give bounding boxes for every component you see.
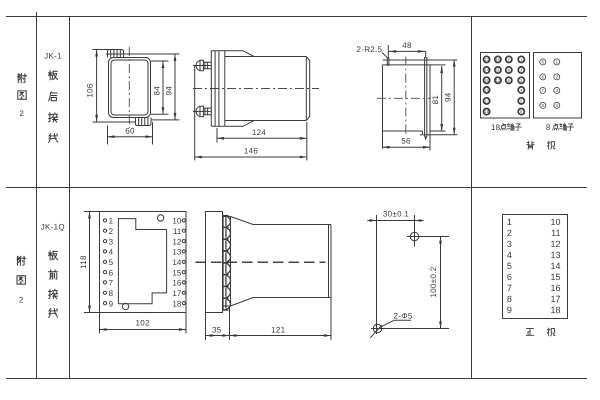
svg-text:48: 48 (402, 41, 412, 50)
svg-text:15: 15 (484, 78, 489, 83)
svg-text:18: 18 (550, 305, 560, 315)
svg-text:14: 14 (484, 68, 489, 73)
svg-text:146: 146 (244, 147, 258, 156)
svg-text:1: 1 (507, 217, 512, 227)
svg-text:121: 121 (271, 325, 285, 334)
svg-text:15: 15 (550, 272, 560, 282)
svg-text:2: 2 (19, 296, 24, 305)
svg-text:102: 102 (135, 319, 149, 328)
svg-text:8: 8 (507, 294, 512, 304)
svg-text:JK-1: JK-1 (44, 52, 62, 61)
svg-text:13: 13 (550, 250, 560, 260)
svg-text:2-R2.5: 2-R2.5 (357, 45, 383, 54)
svg-text:94: 94 (444, 92, 453, 102)
svg-text:106: 106 (86, 83, 95, 97)
svg-text:60: 60 (125, 127, 135, 136)
svg-text:17: 17 (550, 294, 560, 304)
svg-text:14: 14 (172, 258, 181, 267)
svg-text:7: 7 (109, 279, 114, 288)
svg-text:16: 16 (550, 283, 560, 293)
svg-text:13: 13 (484, 57, 489, 62)
svg-text:2-Φ5: 2-Φ5 (394, 312, 413, 321)
svg-text:17: 17 (172, 289, 181, 298)
svg-text:16: 16 (172, 279, 181, 288)
svg-text:JK-1Q: JK-1Q (41, 223, 65, 232)
svg-text:8: 8 (109, 289, 114, 298)
svg-text:9: 9 (507, 305, 512, 315)
svg-text:30±0.1: 30±0.1 (383, 210, 409, 219)
svg-text:12: 12 (550, 239, 560, 249)
svg-text:18: 18 (484, 109, 489, 114)
svg-text:1: 1 (109, 217, 114, 226)
svg-text:18: 18 (491, 123, 501, 132)
svg-text:9: 9 (109, 299, 114, 308)
svg-text:14: 14 (550, 261, 560, 271)
svg-text:56: 56 (401, 137, 411, 146)
svg-text:124: 124 (252, 128, 266, 137)
svg-text:118: 118 (79, 255, 88, 269)
svg-text:10: 10 (550, 217, 560, 227)
svg-text:6: 6 (507, 272, 512, 282)
svg-text:8: 8 (546, 123, 551, 132)
svg-text:13: 13 (172, 248, 181, 257)
svg-text:12: 12 (172, 237, 181, 246)
svg-text:10: 10 (496, 57, 501, 62)
svg-text:7: 7 (507, 283, 512, 293)
svg-text:11: 11 (551, 228, 560, 238)
svg-text:81: 81 (431, 95, 440, 105)
svg-text:16: 16 (484, 88, 489, 93)
svg-text:3: 3 (109, 237, 114, 246)
svg-text:2: 2 (19, 109, 24, 118)
svg-text:94: 94 (165, 86, 174, 96)
svg-text:3: 3 (507, 239, 512, 249)
svg-text:5: 5 (507, 261, 512, 271)
svg-text:11: 11 (173, 227, 182, 236)
svg-text:2: 2 (109, 227, 114, 236)
svg-text:35: 35 (212, 325, 222, 334)
svg-text:4: 4 (109, 248, 114, 257)
svg-text:84: 84 (153, 86, 162, 96)
svg-text:17: 17 (484, 98, 489, 103)
svg-text:15: 15 (172, 268, 181, 277)
svg-text:18: 18 (172, 299, 181, 308)
svg-text:12: 12 (496, 78, 501, 83)
svg-text:10: 10 (172, 217, 181, 226)
svg-text:2: 2 (507, 228, 512, 238)
svg-text:6: 6 (109, 268, 114, 277)
svg-text:5: 5 (109, 258, 114, 267)
svg-text:100±0.2: 100±0.2 (429, 266, 438, 297)
svg-text:4: 4 (507, 250, 512, 260)
